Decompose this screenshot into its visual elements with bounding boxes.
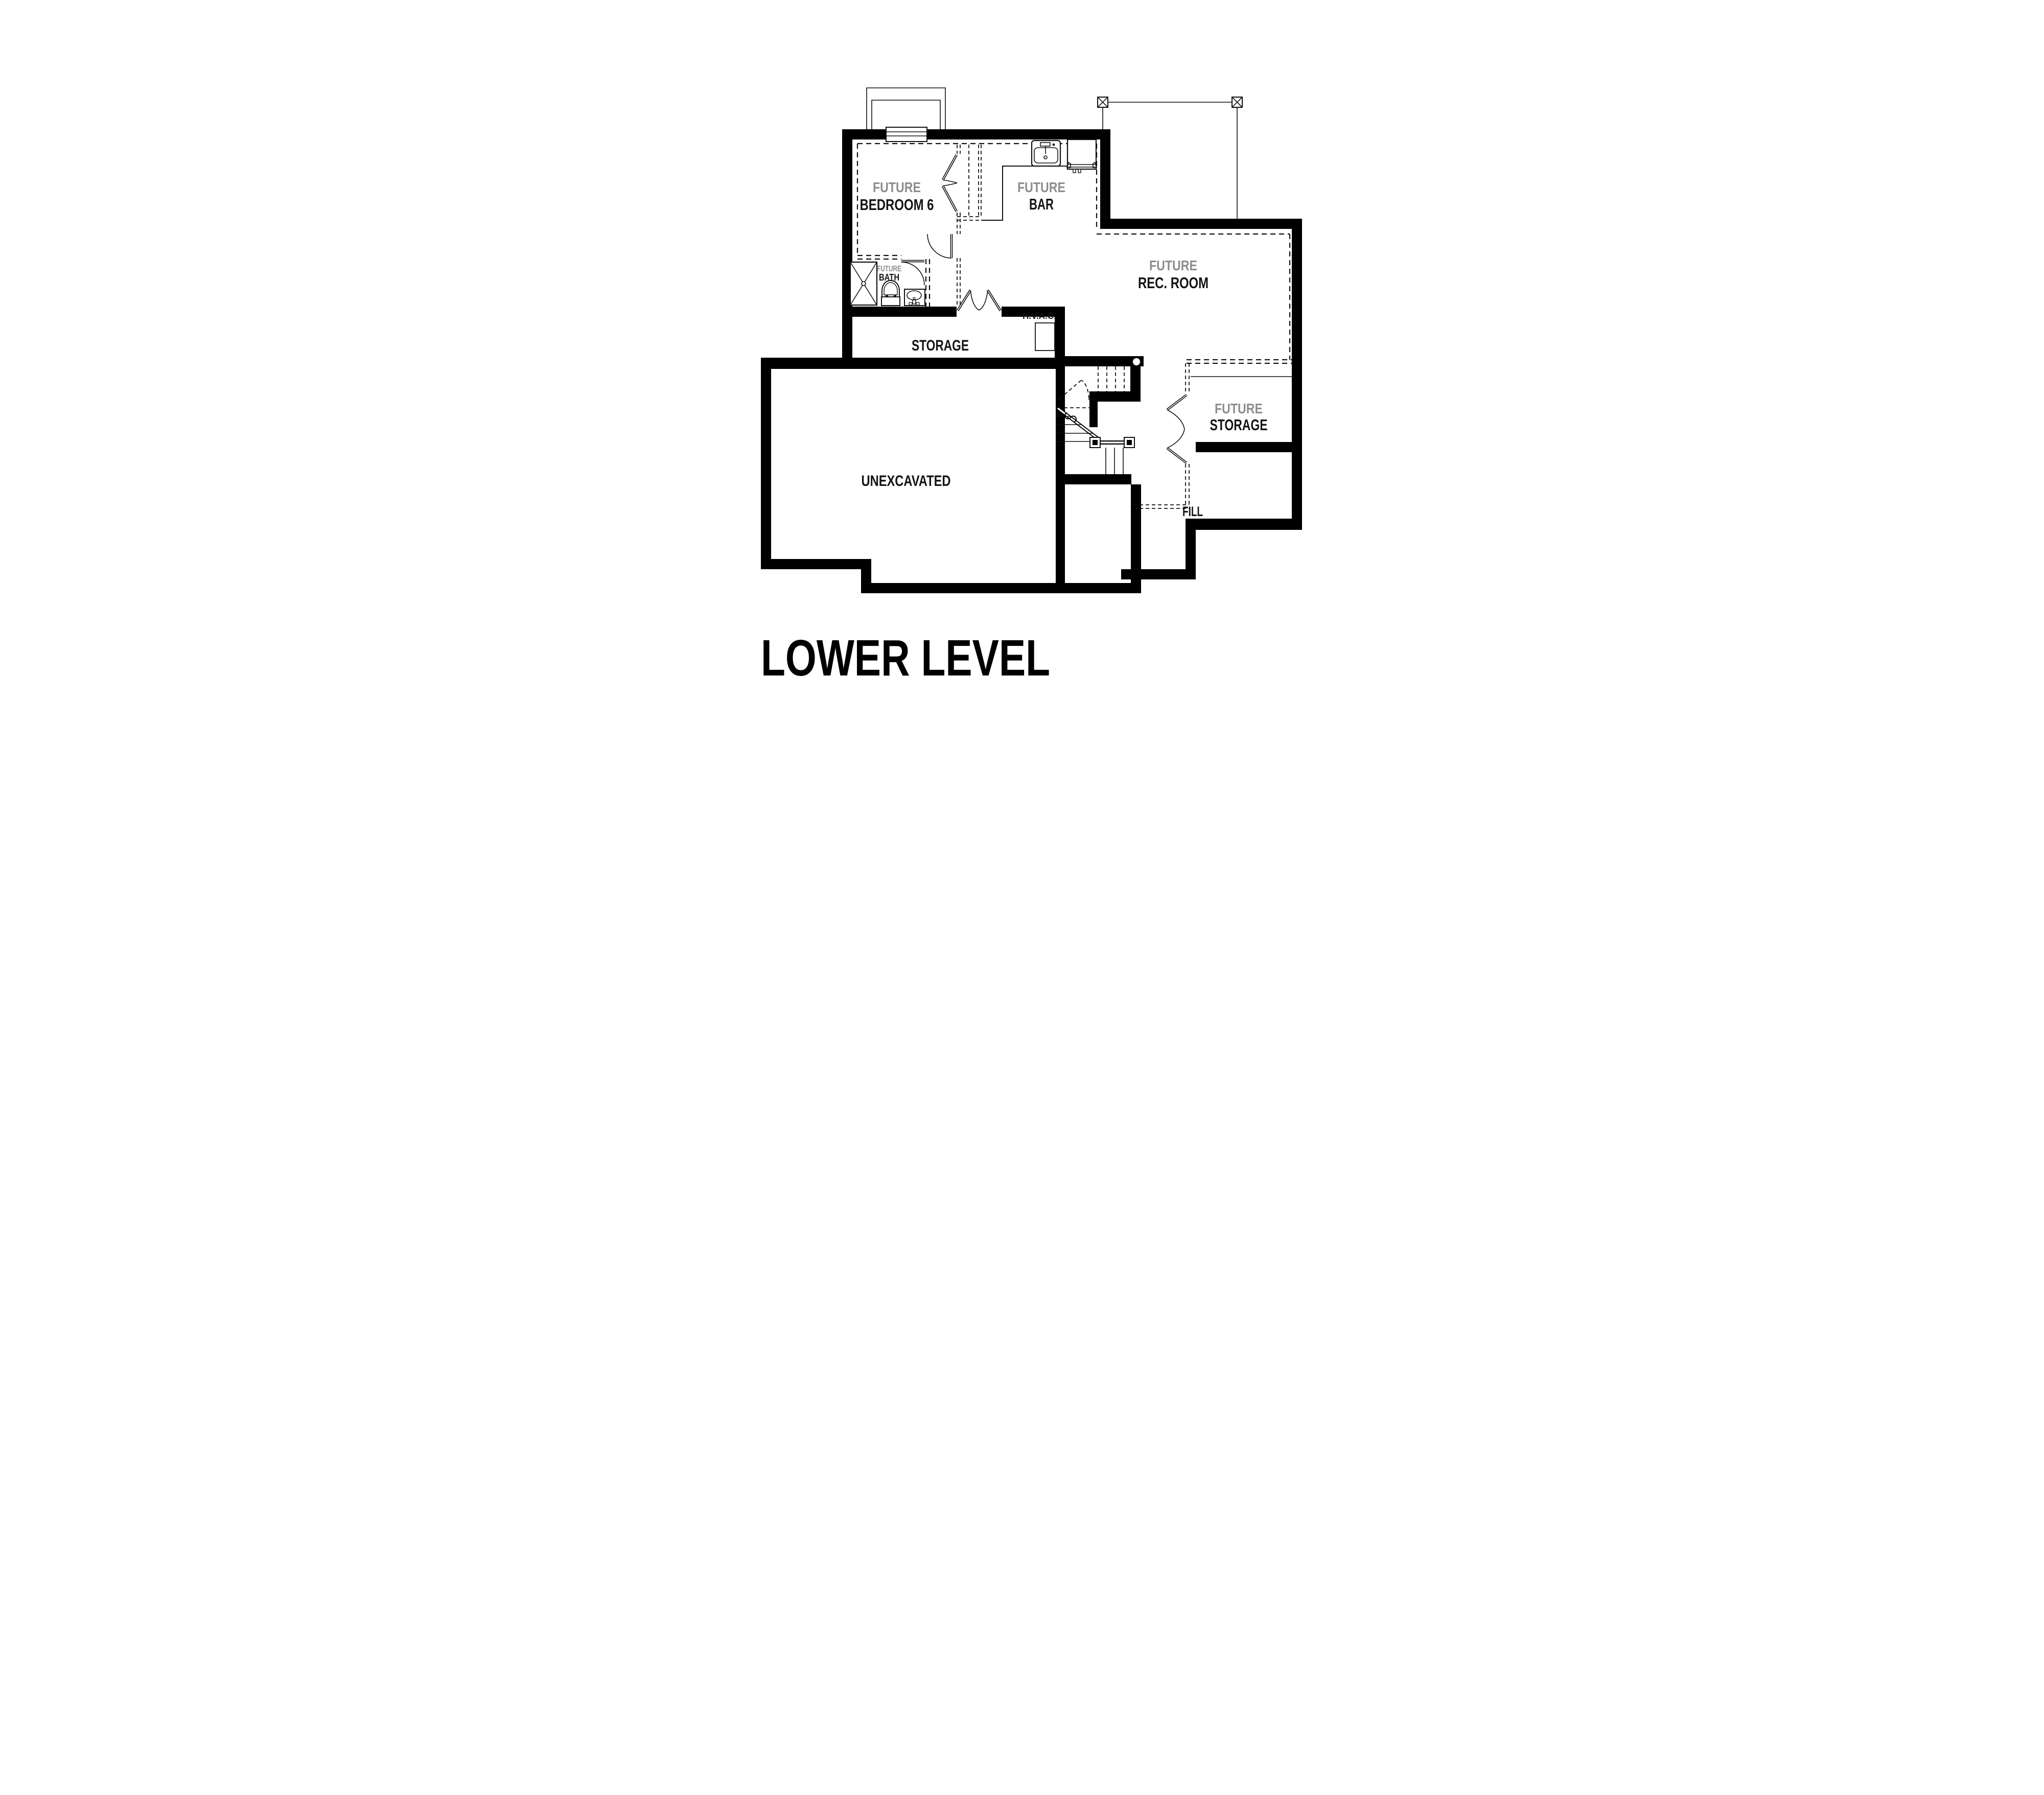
shower-icon (850, 262, 877, 305)
future-storage-bifold-door-icon (1167, 395, 1187, 463)
bedroom6-prefix-label: FUTURE (873, 179, 921, 195)
bar-prefix-label: FUTURE (1017, 179, 1065, 195)
egress-window-icon (886, 127, 927, 142)
bedroom6-label: BEDROOM 6 (860, 196, 934, 214)
storage-double-door-icon (958, 290, 1001, 311)
storage-label: STORAGE (912, 337, 969, 354)
bath-label: BATH (879, 272, 899, 283)
stairs-icon (1058, 358, 1141, 474)
rec-room-label: REC. ROOM (1138, 274, 1209, 292)
window-well (867, 88, 945, 129)
hvac-label: H.V.A.C. (1023, 311, 1056, 321)
unexcavated-label: UNEXCAVATED (861, 473, 950, 489)
vanity-sink-icon (904, 289, 925, 306)
future-storage-prefix-label: FUTURE (1215, 401, 1263, 416)
deck-post-icon (1232, 97, 1242, 107)
bath-door (901, 261, 924, 285)
floor-plan-sheet: FUTURE BEDROOM 6 FUTURE BAR FUTURE REC. … (628, 0, 1417, 709)
bar-label: BAR (1029, 195, 1054, 213)
toilet-icon (881, 281, 900, 306)
future-storage-label: STORAGE (1210, 416, 1267, 434)
closet-bifold-door-icon (943, 155, 957, 212)
floor-plan-drawing: FUTURE BEDROOM 6 FUTURE BAR FUTURE REC. … (628, 0, 1417, 709)
deck-outline (1103, 102, 1237, 219)
deck-post-icon (1098, 97, 1108, 107)
bar-sink-icon (1032, 141, 1060, 166)
handrail (1090, 437, 1134, 448)
bedroom-door (927, 234, 951, 258)
hvac-unit-icon (1035, 323, 1055, 351)
stair-post-icon (1132, 358, 1141, 366)
refrigerator-icon (1067, 139, 1097, 173)
page-title: LOWER LEVEL (761, 630, 1050, 687)
rec-room-prefix-label: FUTURE (1149, 258, 1197, 273)
fill-label: FILL (1182, 504, 1203, 519)
